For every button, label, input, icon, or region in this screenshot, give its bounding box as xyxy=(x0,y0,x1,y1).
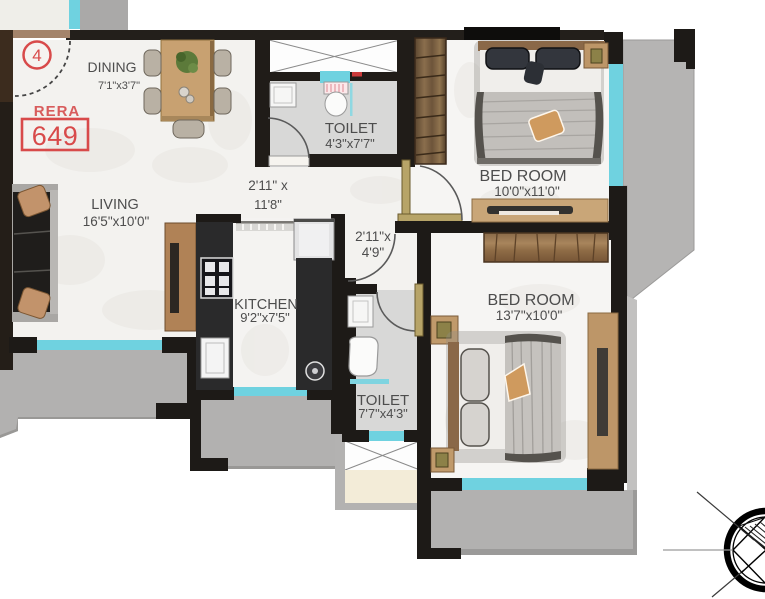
svg-text:LIVING: LIVING xyxy=(91,197,139,213)
svg-text:RERA: RERA xyxy=(34,103,81,120)
svg-text:7'7"x4'3": 7'7"x4'3" xyxy=(358,406,408,421)
svg-text:4: 4 xyxy=(32,46,41,65)
svg-text:4'9": 4'9" xyxy=(362,245,385,260)
svg-text:2'11"x: 2'11"x xyxy=(355,229,391,244)
svg-text:13'7"x10'0": 13'7"x10'0" xyxy=(496,308,563,323)
svg-text:TOILET: TOILET xyxy=(325,120,377,137)
svg-text:7'1"x3'7": 7'1"x3'7" xyxy=(98,80,140,92)
svg-text:10'0"x11'0": 10'0"x11'0" xyxy=(494,184,560,199)
svg-text:9'2"x7'5": 9'2"x7'5" xyxy=(240,310,290,325)
svg-text:BED ROOM: BED ROOM xyxy=(479,168,566,185)
svg-text:11'8": 11'8" xyxy=(254,197,282,212)
svg-text:2'11" x: 2'11" x xyxy=(248,178,288,193)
svg-text:4'3"x7'7": 4'3"x7'7" xyxy=(325,136,375,151)
svg-text:BED ROOM: BED ROOM xyxy=(487,292,574,309)
svg-text:16'5"x10'0": 16'5"x10'0" xyxy=(83,214,150,229)
svg-text:DINING: DINING xyxy=(88,59,137,75)
svg-text:649: 649 xyxy=(32,121,79,151)
